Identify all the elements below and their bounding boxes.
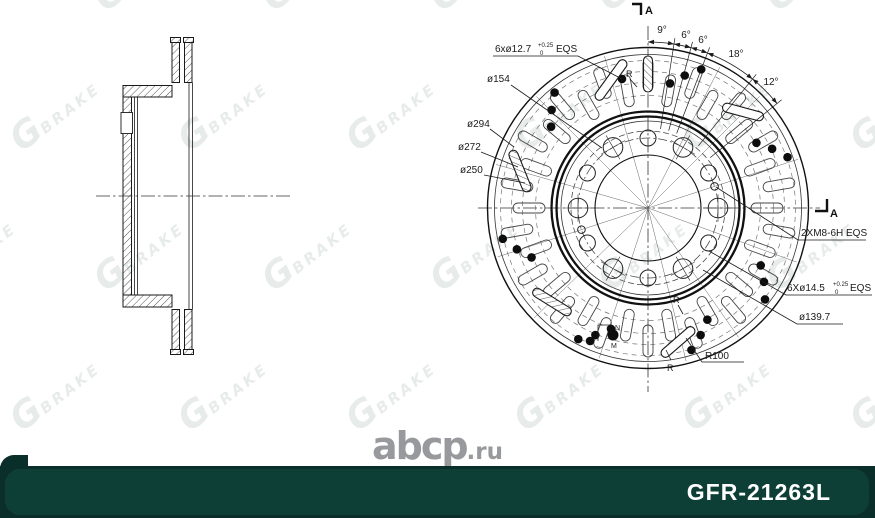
drill-hole-dot bbox=[680, 71, 689, 80]
construction-line bbox=[648, 159, 798, 208]
plate-cap bbox=[171, 350, 181, 355]
drill-hole-dot bbox=[760, 278, 769, 287]
hat-flange-section bbox=[123, 86, 172, 98]
plate-cap bbox=[171, 38, 181, 43]
part-number: GFR-21263L bbox=[687, 479, 831, 506]
friction-plate-section bbox=[172, 43, 180, 83]
technical-drawing: A A 6xø12.7 +0.25 0 EQS ø154 ø294 ø272 ø… bbox=[0, 0, 875, 430]
label-r-bottom: R bbox=[667, 363, 674, 373]
drill-hole-dot bbox=[527, 253, 536, 262]
section-letter-top: A bbox=[645, 5, 653, 17]
friction-plate-section bbox=[185, 43, 193, 83]
drill-hole-dot bbox=[756, 261, 765, 270]
drill-hole-dot bbox=[498, 235, 507, 244]
dimension-arrow bbox=[648, 40, 654, 44]
section-marker-top bbox=[632, 4, 641, 15]
label-thread: 2XM8-6H EQS bbox=[801, 228, 867, 239]
vent-slot bbox=[519, 239, 552, 259]
section-letter-right: A bbox=[830, 208, 838, 220]
site-logo-name: abcp bbox=[372, 424, 467, 468]
hub-hole-section bbox=[121, 113, 133, 134]
hat-flange-section bbox=[123, 295, 172, 307]
site-logo: abcp.ru bbox=[0, 424, 875, 468]
label-lug-eqs: EQS bbox=[850, 283, 871, 294]
brake-disc-front-view: A A 6xø12.7 +0.25 0 EQS ø154 ø294 ø272 ø… bbox=[458, 4, 872, 392]
label-ref-n: N bbox=[615, 325, 620, 332]
brake-disc-side-view bbox=[96, 38, 292, 355]
curved-slot bbox=[508, 149, 533, 193]
label-vent-holes: 6xø12.7 bbox=[495, 44, 532, 55]
drill-hole-dot bbox=[574, 335, 583, 344]
part-number-bar: GFR-21263L bbox=[5, 469, 869, 515]
label-angle-6b: 6° bbox=[698, 35, 708, 46]
drill-hole-dot bbox=[768, 145, 777, 154]
friction-plate-section bbox=[172, 310, 180, 350]
label-vent-tol-up: +0.25 bbox=[538, 43, 554, 49]
leader-r-mid bbox=[678, 305, 683, 314]
vent-slot bbox=[762, 177, 795, 192]
label-pcd: ø139.7 bbox=[799, 312, 831, 323]
vent-slot bbox=[762, 223, 795, 238]
hub-hole bbox=[701, 165, 717, 181]
plate-cap bbox=[184, 38, 194, 43]
label-angle-12: 12° bbox=[763, 77, 778, 88]
drill-hole-dot bbox=[783, 153, 792, 162]
curved-slot bbox=[531, 287, 573, 318]
vent-slot bbox=[620, 309, 635, 342]
label-r-top: R bbox=[626, 69, 633, 79]
label-dia154: ø154 bbox=[487, 74, 510, 85]
plate-cap bbox=[184, 350, 194, 355]
curved-slots bbox=[508, 56, 765, 359]
vent-slot bbox=[661, 309, 676, 342]
label-ref-m: M bbox=[611, 343, 617, 350]
section-marker-right bbox=[815, 199, 827, 211]
label-angle-6a: 6° bbox=[681, 30, 691, 41]
leader-dia294 bbox=[490, 129, 514, 147]
drill-hole-dot bbox=[761, 295, 770, 304]
vent-slot bbox=[516, 262, 549, 287]
label-dia294: ø294 bbox=[467, 119, 490, 130]
label-lug-holes: 6Xø14.5 bbox=[787, 283, 825, 294]
drill-hole-dot bbox=[697, 65, 706, 74]
drill-hole-dot bbox=[696, 331, 705, 340]
drill-hole-dot bbox=[752, 139, 761, 148]
drill-hole-dot bbox=[666, 79, 675, 88]
site-logo-tld: .ru bbox=[467, 439, 503, 465]
label-angle-9: 9° bbox=[657, 25, 667, 36]
vent-slot bbox=[576, 295, 601, 328]
page: GBRAKEGBRAKEGBRAKEGBRAKEGBRAKEGBRAKEGBRA… bbox=[0, 0, 875, 518]
construction-line bbox=[648, 208, 739, 337]
label-dia250: ø250 bbox=[460, 165, 483, 176]
drill-hole-dot bbox=[550, 88, 559, 97]
friction-plate-section bbox=[185, 310, 193, 350]
drill-hole-dot bbox=[547, 122, 556, 131]
label-r-mid: R bbox=[673, 295, 680, 305]
drill-hole-dot bbox=[586, 337, 595, 346]
label-angle-18: 18° bbox=[728, 49, 743, 60]
vent-slot bbox=[743, 157, 776, 177]
construction-lines bbox=[496, 56, 798, 361]
curved-slot bbox=[644, 56, 653, 92]
label-dia272: ø272 bbox=[458, 142, 481, 153]
label-lug-tol-up: +0.25 bbox=[833, 282, 849, 288]
drill-hole-dot bbox=[703, 315, 712, 324]
label-r100: R100 bbox=[705, 351, 729, 362]
dimension-extension-line bbox=[677, 47, 710, 133]
label-vent-eqs: EQS bbox=[556, 44, 577, 55]
drill-hole-dot bbox=[513, 245, 522, 254]
